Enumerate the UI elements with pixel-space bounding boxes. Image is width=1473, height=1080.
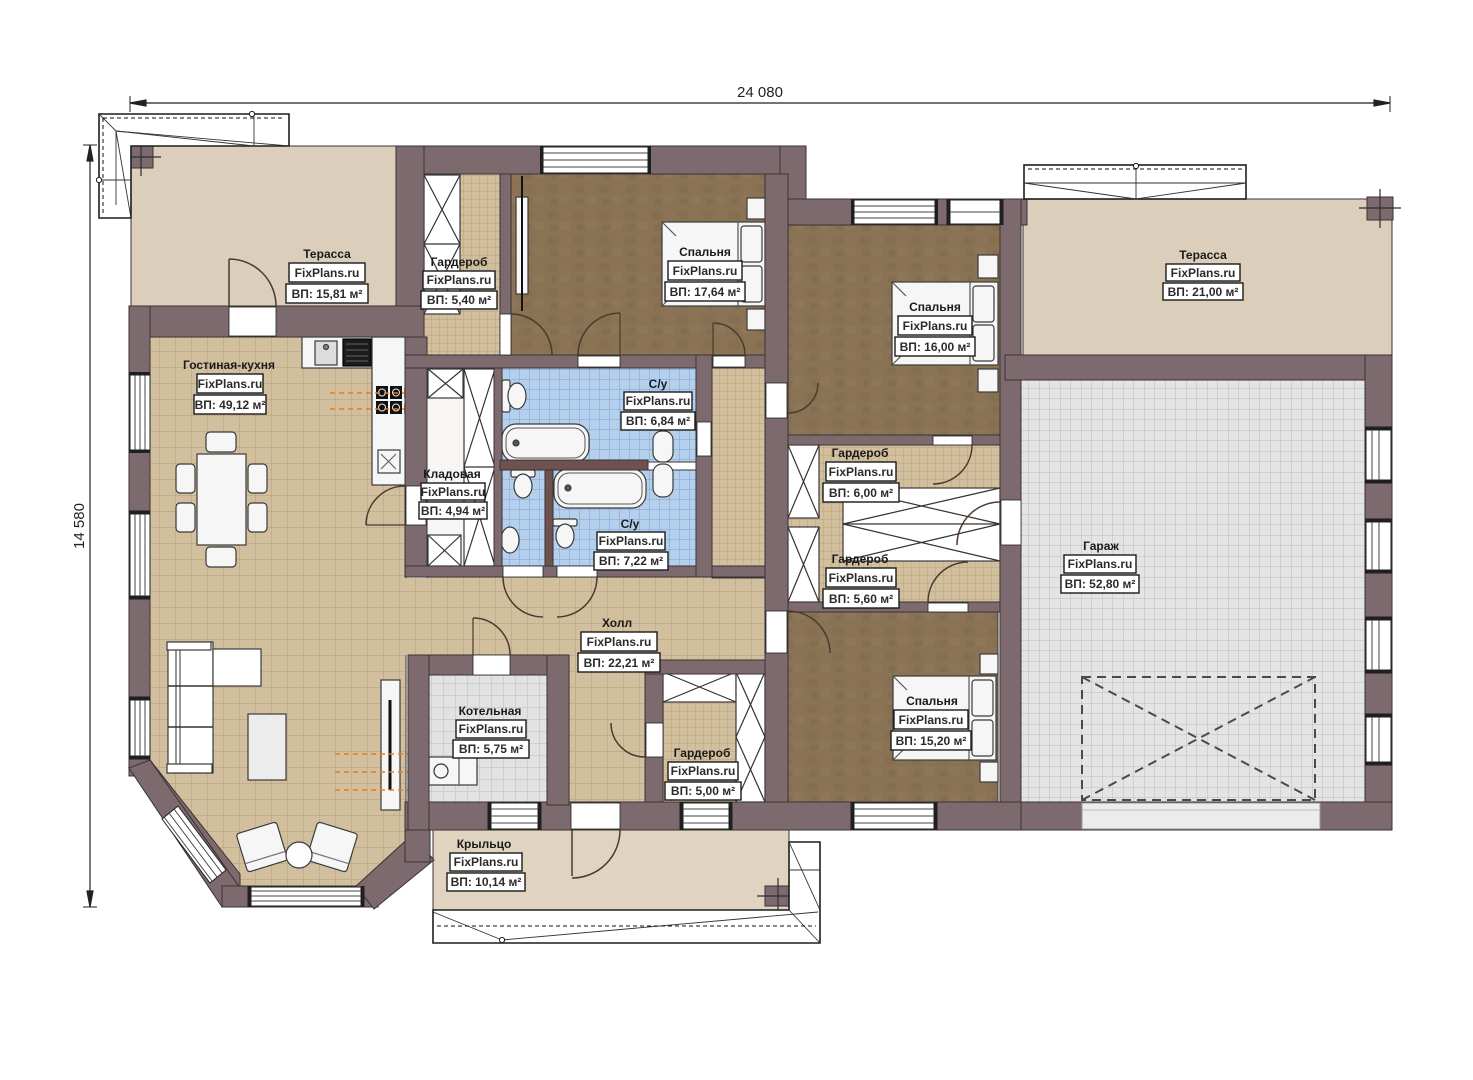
svg-text:FixPlans.ru: FixPlans.ru (587, 635, 652, 649)
svg-text:ВП: 17,64 м²: ВП: 17,64 м² (670, 285, 741, 299)
svg-text:FixPlans.ru: FixPlans.ru (899, 713, 964, 727)
svg-text:Терасса: Терасса (303, 247, 351, 261)
svg-text:FixPlans.ru: FixPlans.ru (1068, 557, 1133, 571)
svg-text:Крыльцо: Крыльцо (457, 837, 512, 851)
svg-text:FixPlans.ru: FixPlans.ru (427, 273, 492, 287)
svg-text:FixPlans.ru: FixPlans.ru (671, 764, 736, 778)
svg-text:С/у: С/у (621, 517, 640, 531)
svg-text:ВП: 5,00 м²: ВП: 5,00 м² (671, 784, 735, 798)
svg-text:ВП: 52,80 м²: ВП: 52,80 м² (1065, 577, 1136, 591)
svg-text:FixPlans.ru: FixPlans.ru (829, 465, 894, 479)
svg-text:С/у: С/у (649, 377, 668, 391)
svg-text:Котельная: Котельная (459, 704, 522, 718)
svg-text:Гараж: Гараж (1083, 539, 1119, 553)
svg-text:ВП: 16,00 м²: ВП: 16,00 м² (900, 340, 971, 354)
svg-text:FixPlans.ru: FixPlans.ru (903, 319, 968, 333)
svg-text:ВП: 5,40 м²: ВП: 5,40 м² (427, 293, 491, 307)
svg-text:FixPlans.ru: FixPlans.ru (421, 485, 486, 499)
svg-text:ВП: 7,22 м²: ВП: 7,22 м² (599, 554, 663, 568)
svg-text:14 580: 14 580 (71, 503, 88, 549)
svg-text:Кладовая: Кладовая (423, 467, 480, 481)
svg-text:FixPlans.ru: FixPlans.ru (295, 266, 360, 280)
svg-text:ВП: 4,94 м²: ВП: 4,94 м² (421, 504, 485, 518)
svg-text:ВП: 10,14 м²: ВП: 10,14 м² (451, 875, 522, 889)
svg-text:ВП: 22,21 м²: ВП: 22,21 м² (584, 656, 655, 670)
svg-text:FixPlans.ru: FixPlans.ru (459, 722, 524, 736)
svg-text:Спальня: Спальня (906, 694, 958, 708)
svg-text:FixPlans.ru: FixPlans.ru (626, 394, 691, 408)
svg-text:ВП: 15,81 м²: ВП: 15,81 м² (292, 287, 363, 301)
svg-text:Гардероб: Гардероб (832, 446, 889, 460)
svg-text:ВП: 5,75 м²: ВП: 5,75 м² (459, 742, 523, 756)
svg-text:FixPlans.ru: FixPlans.ru (454, 855, 519, 869)
svg-text:FixPlans.ru: FixPlans.ru (673, 264, 738, 278)
svg-text:Спальня: Спальня (679, 245, 731, 259)
svg-text:ВП: 6,84 м²: ВП: 6,84 м² (626, 414, 690, 428)
svg-text:24 080: 24 080 (737, 84, 783, 101)
svg-text:Холл: Холл (602, 616, 632, 630)
svg-text:ВП: 5,60 м²: ВП: 5,60 м² (829, 592, 893, 606)
svg-text:ВП: 15,20 м²: ВП: 15,20 м² (896, 734, 967, 748)
svg-text:ВП: 21,00 м²: ВП: 21,00 м² (1168, 285, 1239, 299)
svg-text:FixPlans.ru: FixPlans.ru (198, 377, 263, 391)
svg-text:FixPlans.ru: FixPlans.ru (829, 571, 894, 585)
svg-text:ВП: 6,00 м²: ВП: 6,00 м² (829, 486, 893, 500)
svg-text:Гардероб: Гардероб (431, 255, 488, 269)
svg-text:Гардероб: Гардероб (832, 552, 889, 566)
svg-text:Гостиная-кухня: Гостиная-кухня (183, 358, 275, 372)
svg-text:FixPlans.ru: FixPlans.ru (599, 534, 664, 548)
svg-text:FixPlans.ru: FixPlans.ru (1171, 266, 1236, 280)
svg-text:ВП: 49,12 м²: ВП: 49,12 м² (195, 398, 266, 412)
svg-text:Терасса: Терасса (1179, 248, 1227, 262)
svg-text:Гардероб: Гардероб (674, 746, 731, 760)
svg-text:Спальня: Спальня (909, 300, 961, 314)
